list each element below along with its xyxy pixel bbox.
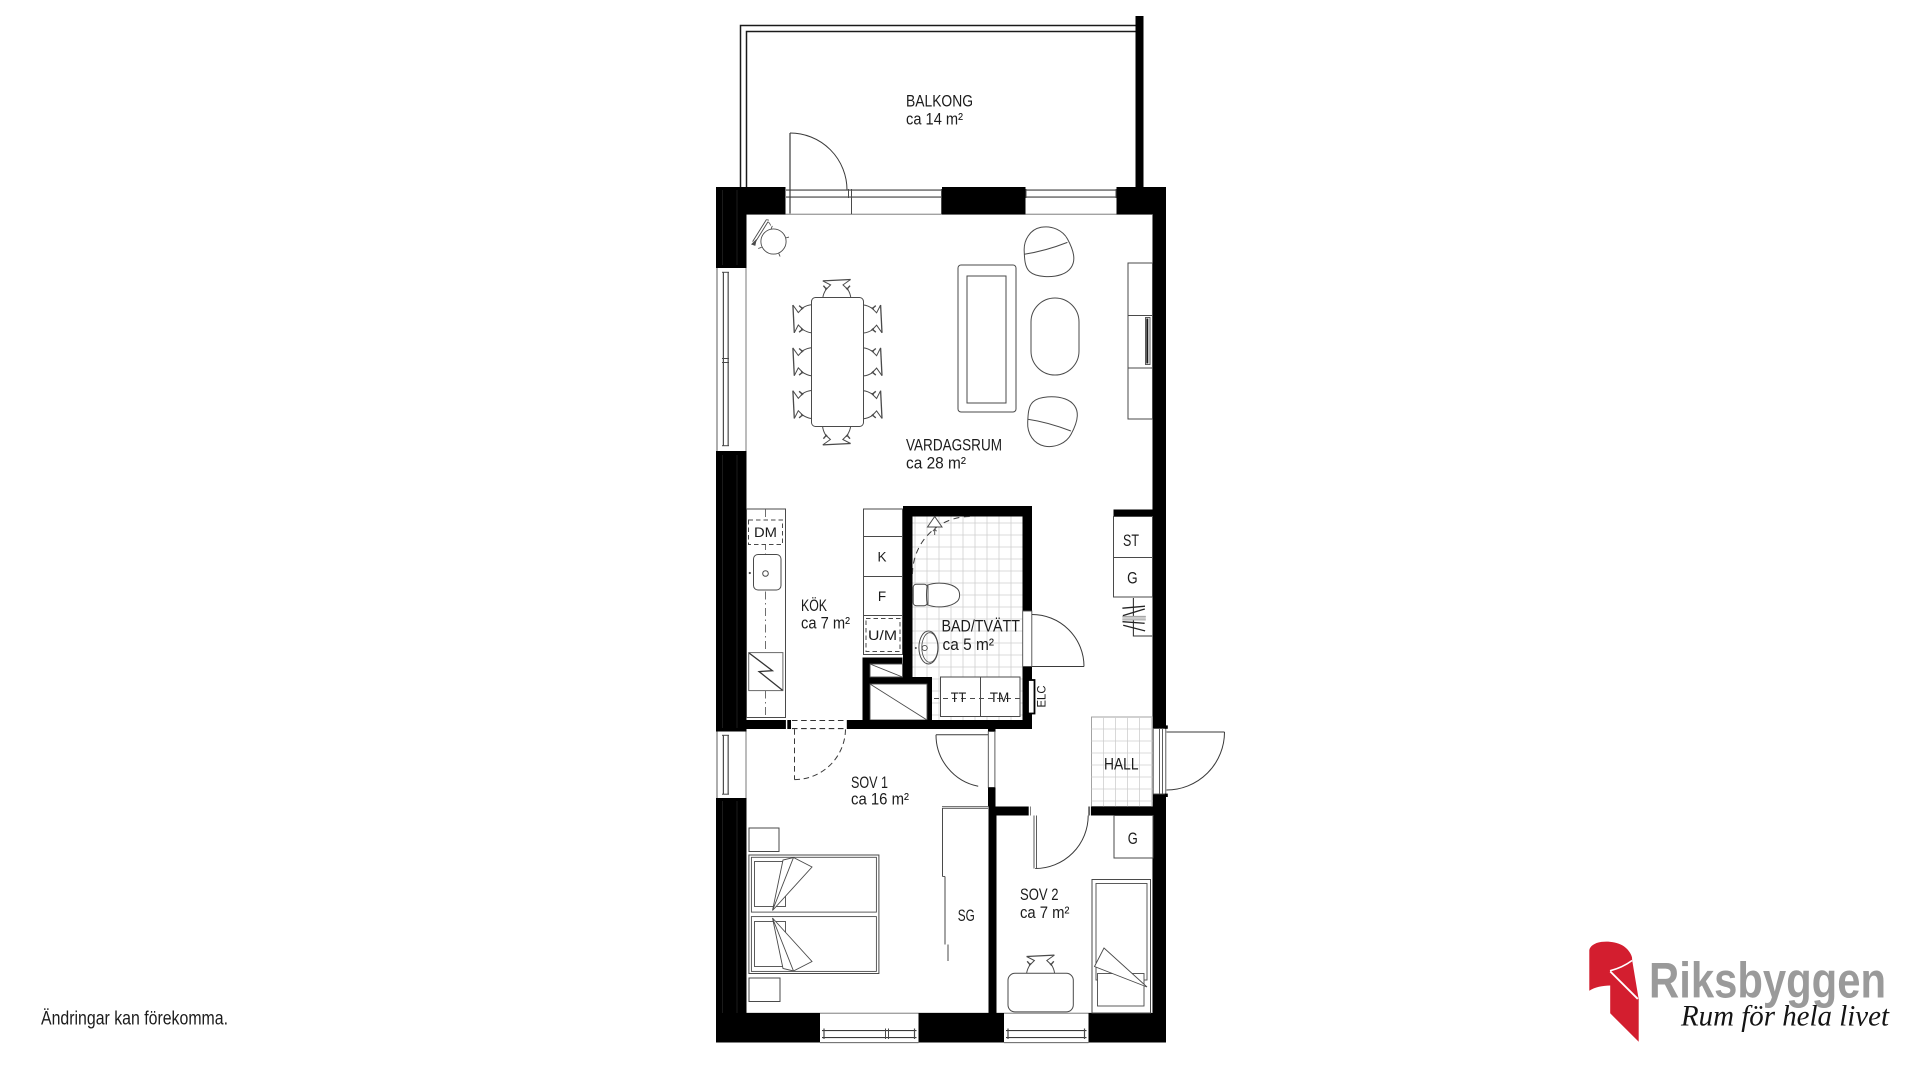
- svg-text:U/M: U/M: [868, 628, 897, 643]
- svg-text:F: F: [878, 589, 886, 604]
- svg-text:VARDAGSRUM: VARDAGSRUM: [906, 437, 1002, 455]
- svg-text:HALL: HALL: [1104, 756, 1139, 774]
- svg-text:BAD/TVÄTT: BAD/TVÄTT: [942, 618, 1021, 636]
- svg-text:Ändringar kan förekomma.: Ändringar kan förekomma.: [41, 1009, 228, 1030]
- svg-text:ca 14 m²: ca 14 m²: [906, 111, 963, 129]
- svg-text:ST: ST: [1123, 532, 1139, 550]
- svg-text:SG: SG: [958, 907, 975, 925]
- svg-text:ca 28 m²: ca 28 m²: [906, 455, 966, 473]
- svg-text:KÖK: KÖK: [801, 597, 827, 615]
- svg-text:ELC: ELC: [1037, 686, 1049, 708]
- svg-text:BALKONG: BALKONG: [906, 93, 973, 111]
- svg-text:ca 5 m²: ca 5 m²: [943, 636, 995, 654]
- svg-text:G: G: [1127, 570, 1138, 588]
- svg-text:SOV 1: SOV 1: [851, 774, 888, 792]
- svg-text:DM: DM: [754, 525, 777, 540]
- svg-text:TM: TM: [990, 690, 1010, 705]
- svg-text:TT: TT: [951, 690, 967, 705]
- svg-text:Rum för hela livet: Rum för hela livet: [1680, 1000, 1890, 1033]
- svg-text:G: G: [1128, 830, 1138, 848]
- svg-text:SOV 2: SOV 2: [1020, 886, 1059, 904]
- svg-text:ca 7 m²: ca 7 m²: [801, 615, 850, 633]
- svg-text:ca 16 m²: ca 16 m²: [851, 791, 909, 809]
- svg-text:ca 7 m²: ca 7 m²: [1020, 904, 1070, 922]
- svg-text:K: K: [877, 550, 886, 565]
